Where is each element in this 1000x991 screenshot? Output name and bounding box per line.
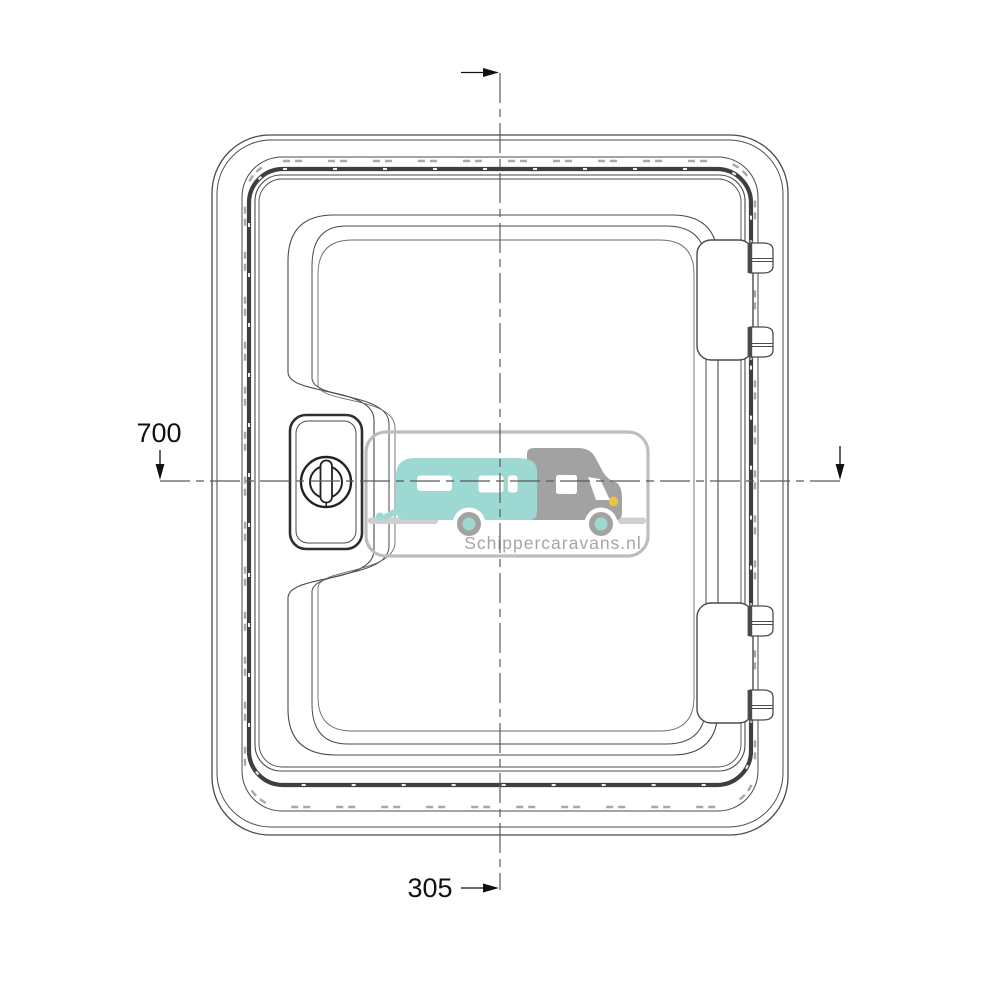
watermark-text: Schippercaravans.nl (464, 533, 642, 553)
arrowhead-right-icon (483, 68, 499, 77)
lock-assembly (290, 415, 362, 549)
hinge-pin-dark (748, 327, 753, 357)
arrowhead-down-icon (836, 464, 845, 480)
hinge-pin-dark (748, 606, 753, 636)
dimension-700-label: 700 (136, 418, 181, 448)
hinge-top-knuckle-1 (750, 243, 773, 273)
motorhome-headlight (609, 497, 618, 507)
dimension-700: 700 (136, 418, 181, 480)
dimension-305: 305 (407, 873, 499, 903)
caravan-icon (376, 458, 537, 521)
watermark: Schippercaravans.nl (366, 432, 648, 556)
technical-drawing-page: Schippercaravans.nl 700 305 (0, 0, 1000, 991)
motorhome-wheel-hub (595, 518, 608, 531)
dimension-arrow-top (461, 68, 499, 77)
caravan-window-3 (508, 476, 518, 493)
hinge-bottom-knuckle-2 (750, 690, 773, 720)
hinge-pin-dark (748, 690, 753, 720)
service-door-drawing: Schippercaravans.nl 700 305 (0, 0, 1000, 991)
hinge-top-knuckle-2 (750, 327, 773, 357)
arrowhead-down-icon (156, 464, 165, 480)
motorhome-side-window (556, 475, 577, 494)
hinge-top-body (697, 240, 753, 360)
hinge-pin-dark (748, 243, 753, 273)
dimension-305-label: 305 (407, 873, 452, 903)
caravan-wheel-hub (463, 518, 476, 531)
caravan-hitch-ball (376, 513, 384, 521)
hinge-bottom-body (697, 603, 753, 723)
dimension-arrow-right (836, 446, 845, 480)
watermark-ground-right (618, 518, 646, 525)
hinge-top (697, 240, 773, 360)
arrowhead-right-icon (483, 884, 499, 893)
hinge-bottom (697, 603, 773, 723)
hinge-bottom-knuckle-1 (750, 606, 773, 636)
caravan-window-1 (417, 476, 452, 492)
